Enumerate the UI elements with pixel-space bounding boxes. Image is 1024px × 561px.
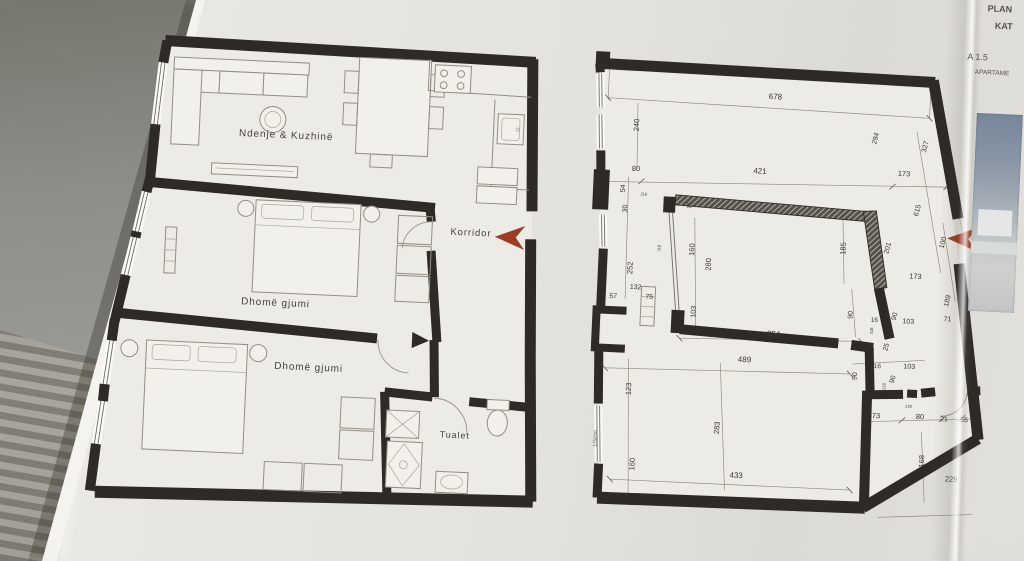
photo-vignette xyxy=(0,0,1024,561)
photographed-floorplan-page: Ndenje & KuzhinëKorridorDhomë gjumiDhomë… xyxy=(0,0,1024,561)
